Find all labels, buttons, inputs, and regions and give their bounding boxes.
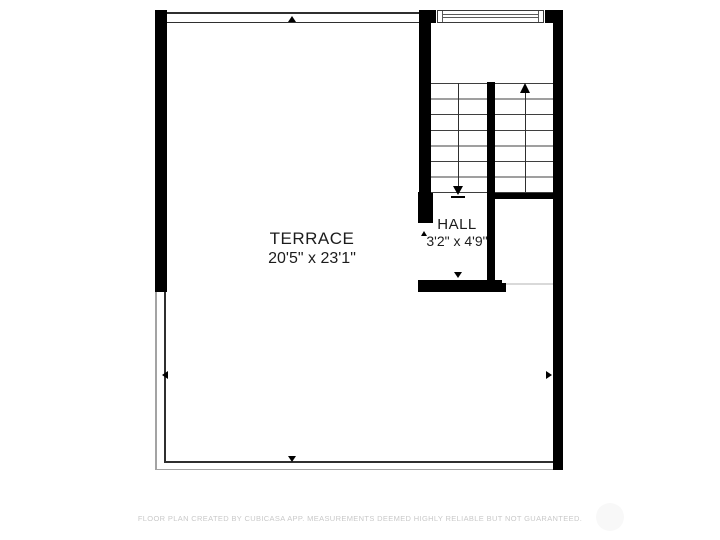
stair-up-direction-line [525,92,527,192]
window-end-cap [442,11,443,22]
wall-stairs-left [419,10,431,192]
footer-disclaimer: FLOOR PLAN CREATED BY CUBICASA APP. MEAS… [0,514,720,523]
stair-down-arrow-icon [453,186,463,195]
railing-bottom-inner [164,461,553,463]
opening-marker-bottom-icon [288,456,296,462]
wall-closet-bottom [487,283,506,292]
hall-name: HALL [397,216,517,233]
wall-below-stairs [495,192,555,199]
closet-opening-line [506,283,553,285]
wall-stairs-divider [487,82,495,292]
terrace-room-label: TERRACE 20'5" x 23'1" [222,229,402,269]
railing-left-outer [155,292,157,470]
window-symbol [437,10,544,23]
wall-top-corner-left [419,10,436,23]
wall-right [553,10,563,470]
stair-up-arrow-icon [520,83,530,93]
window-mullion-line [442,17,539,18]
stair-down-direction-line [458,83,460,186]
opening-marker-top-icon [288,16,296,22]
railing-bottom-outer [155,469,553,471]
opening-marker-right-icon [546,371,552,379]
terrace-dimensions: 20'5" x 23'1" [222,249,402,269]
floorplan-canvas: TERRACE 20'5" x 23'1" HALL 3'2" x 4'9" F… [0,0,720,540]
wall-left [155,10,167,292]
opening-marker-left-icon [162,371,168,379]
hall-room-label: HALL 3'2" x 4'9" [397,216,517,249]
window-end-cap [538,11,539,22]
stair-start-bar [451,196,465,198]
terrace-top-edge-outer [167,12,419,14]
hall-dimensions: 3'2" x 4'9" [397,233,517,249]
stair-flight-down-treads [431,83,487,193]
terrace-name: TERRACE [222,229,402,249]
hall-door-marker-icon [454,272,462,278]
window-mullion-line [442,14,539,15]
